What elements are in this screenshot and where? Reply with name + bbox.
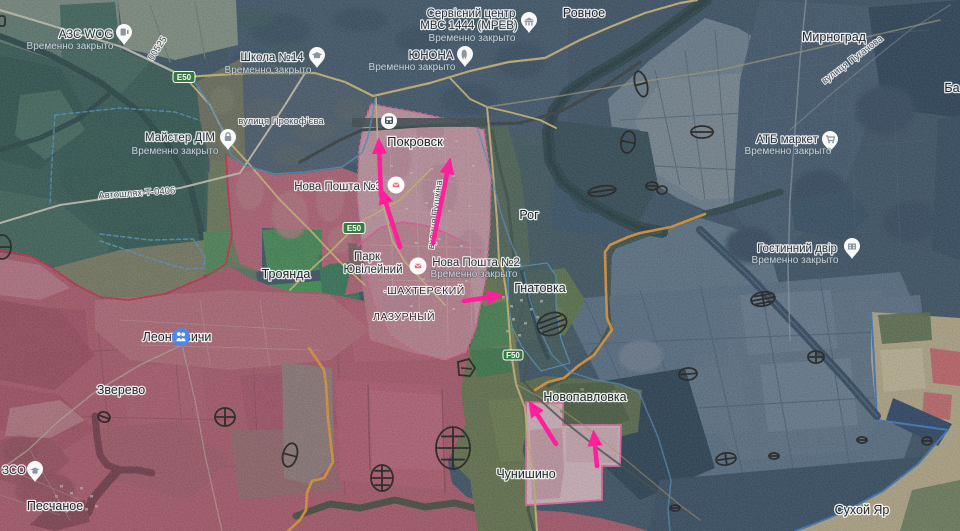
svg-text:ЛАЗУРНЫЙ: ЛАЗУРНЫЙ (373, 310, 435, 323)
svg-text:Новопавловка: Новопавловка (543, 390, 626, 404)
svg-text:АТБ маркет: АТБ маркет (756, 134, 818, 146)
svg-text:Временно закрыто: Временно закрыто (27, 41, 114, 52)
svg-text:·ШАХТЕРСКИЙ: ·ШАХТЕРСКИЙ (383, 284, 465, 297)
svg-text:Сервісний центр: Сервісний центр (427, 8, 516, 20)
svg-text:МВС 1444 (МРЕВ): МВС 1444 (МРЕВ) (420, 20, 518, 32)
svg-text:Нова Пошта №2: Нова Пошта №2 (432, 257, 520, 269)
svg-text:Майстер ДІМ: Майстер ДІМ (145, 132, 215, 144)
svg-text:Покровск: Покровск (387, 134, 443, 149)
svg-text:вулиця Прокофʼєва: вулиця Прокофʼєва (238, 116, 324, 127)
svg-text:Гостинний двір: Гостинний двір (757, 243, 837, 255)
svg-text:Временно закрыто: Временно закрыто (225, 65, 312, 76)
svg-text:Троянда: Троянда (262, 267, 311, 281)
svg-text:Песчаное: Песчаное (27, 499, 83, 513)
svg-text:ЮНОНА: ЮНОНА (409, 50, 454, 62)
svg-text:Мирноград: Мирноград (802, 30, 867, 44)
svg-text:Временно закрыто: Временно закрыто (132, 146, 219, 157)
svg-text:Гнатовка: Гнатовка (514, 281, 566, 295)
svg-text:Временно закрыто: Временно закрыто (745, 146, 832, 157)
svg-text:Нова Пошта №3: Нова Пошта №3 (294, 181, 382, 193)
svg-text:Чунишино: Чунишино (496, 467, 555, 481)
svg-text:F50: F50 (506, 351, 520, 360)
svg-text:E50: E50 (177, 73, 192, 82)
svg-text:E50: E50 (347, 224, 362, 233)
svg-text:Парк: Парк (354, 251, 381, 263)
svg-text:Зверево: Зверево (97, 383, 145, 397)
svg-text:Рог: Рог (519, 208, 539, 222)
svg-text:Временно закрыто: Временно закрыто (431, 269, 518, 280)
svg-text:ЗСО: ЗСО (2, 465, 26, 477)
svg-text:АЗС WOG: АЗС WOG (59, 29, 114, 41)
svg-text:Ба: Ба (944, 81, 959, 95)
svg-text:Школа №14: Школа №14 (240, 52, 304, 64)
svg-text:Ровное: Ровное (563, 6, 605, 20)
svg-text:Временно закрыто: Временно закрыто (369, 62, 456, 73)
svg-text:Временно закрыто: Временно закрыто (429, 33, 516, 44)
svg-text:Временно закрыто: Временно закрыто (752, 255, 839, 266)
svg-text:Ювілейний: Ювілейний (343, 264, 402, 276)
svg-text:Сухой Яр: Сухой Яр (835, 503, 890, 517)
